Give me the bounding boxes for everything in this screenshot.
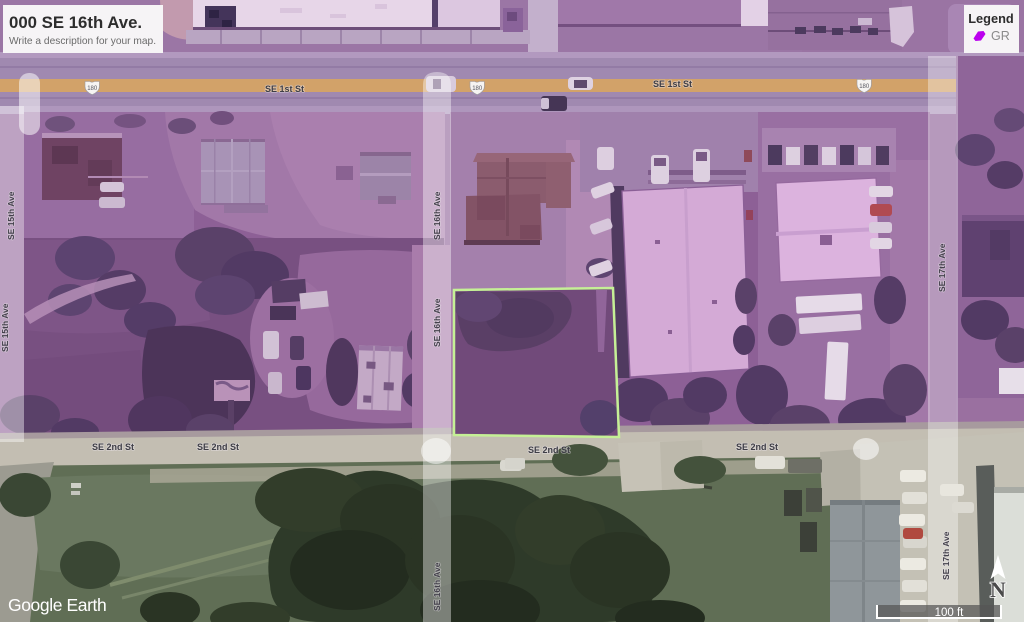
svg-text:SE 1st St: SE 1st St xyxy=(265,84,304,94)
svg-text:Google Earth: Google Earth xyxy=(8,595,106,615)
svg-text:SE 15th Ave: SE 15th Ave xyxy=(6,191,16,240)
svg-text:SE 15th Ave: SE 15th Ave xyxy=(0,303,10,352)
svg-text:SE 17th Ave: SE 17th Ave xyxy=(937,243,947,292)
svg-text:180: 180 xyxy=(87,86,98,92)
svg-text:180: 180 xyxy=(859,84,870,90)
svg-text:100 ft: 100 ft xyxy=(935,607,965,619)
svg-text:180: 180 xyxy=(472,86,483,92)
svg-text:SE 2nd St: SE 2nd St xyxy=(528,445,570,455)
svg-text:SE 2nd St: SE 2nd St xyxy=(197,442,239,452)
svg-text:GR: GR xyxy=(991,29,1010,43)
svg-text:SE 16th Ave: SE 16th Ave xyxy=(432,191,442,240)
svg-text:N: N xyxy=(990,577,1006,602)
svg-text:Legend: Legend xyxy=(968,11,1014,26)
svg-text:SE 1st St: SE 1st St xyxy=(653,79,692,89)
svg-text:000 SE 16th Ave.: 000 SE 16th Ave. xyxy=(9,13,142,32)
svg-text:SE 2nd St: SE 2nd St xyxy=(736,442,778,452)
svg-text:Write a description for your m: Write a description for your map. xyxy=(9,36,156,47)
svg-text:SE 16th Ave: SE 16th Ave xyxy=(432,298,442,347)
svg-text:SE 16th Ave: SE 16th Ave xyxy=(432,562,442,611)
svg-text:SE 2nd St: SE 2nd St xyxy=(92,442,134,452)
svg-text:SE 17th Ave: SE 17th Ave xyxy=(941,531,951,580)
